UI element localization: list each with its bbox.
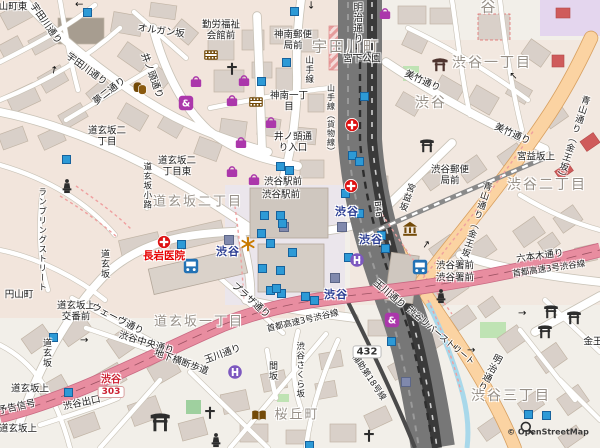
station-entrance-marker (278, 219, 287, 228)
street-label: 道玄坂上 (0, 425, 37, 436)
station-entrance-marker (282, 58, 291, 67)
attribution[interactable]: © OpenStreetMap (507, 429, 589, 438)
oneway-arrow-icon: → (50, 65, 61, 75)
street-label: 勤労福祉 会館前 (202, 20, 240, 41)
shrine-icon (432, 56, 448, 76)
street-label: 山手線（貨物線） (326, 84, 335, 156)
station-name-label: 渋谷 (359, 234, 383, 246)
street-label: 渋谷署前 (436, 262, 474, 273)
street-label: 渋谷さくら坂 (294, 342, 304, 399)
torii-icon (543, 303, 559, 323)
station-entrance-marker (387, 337, 396, 346)
area-label: 谷 (480, 0, 497, 15)
bag-icon (236, 72, 252, 92)
station-entrance-marker (542, 411, 551, 420)
area-label: 渋谷三丁目 (471, 389, 551, 405)
station-entrance-marker (360, 92, 369, 101)
street-label: 渋谷駅前 (264, 178, 302, 189)
station-entrance-marker (64, 388, 73, 397)
street-label: ランブリングストリート (36, 188, 46, 293)
street-label: 宮下公園 (343, 55, 381, 66)
station-entrance-marker (276, 266, 285, 275)
street-label: 道玄坂 (41, 338, 51, 368)
area-label: 渋谷 (415, 96, 447, 112)
station-entrance-marker (301, 292, 310, 301)
subway-entrance-marker (337, 222, 347, 232)
cinema-icon (248, 94, 264, 114)
theater-icon (132, 80, 148, 100)
area-label: 渋谷一丁目 (452, 56, 532, 72)
bag-icon (377, 5, 393, 25)
highway-name-label: 渋谷 (101, 374, 121, 385)
cinema-icon (203, 47, 219, 67)
station-entrance-marker (177, 240, 186, 249)
bag-icon (246, 171, 262, 191)
torii-icon (149, 410, 171, 436)
station-entrance-marker (524, 410, 533, 419)
book-icon (251, 408, 267, 428)
station-entrance-marker (310, 296, 319, 305)
hcircle-icon (227, 364, 243, 384)
station-entrance-marker (83, 8, 92, 17)
area-label: 渋谷二丁目 (507, 178, 587, 194)
route-badge: 432 (353, 345, 382, 358)
station-name-label: 渋谷 (324, 289, 348, 301)
torii-icon (537, 323, 553, 343)
station-entrance-marker (260, 211, 269, 220)
statue-icon (59, 178, 75, 198)
street-label: 金王 (583, 338, 600, 349)
hospital-icon (344, 117, 360, 137)
station-entrance-marker (355, 157, 364, 166)
street-label: 渋谷郵便 局前 (431, 165, 469, 186)
route-badge: 303 (98, 386, 125, 398)
torii-icon (566, 309, 582, 329)
church-icon (361, 429, 377, 448)
street-label: 間坂 (267, 361, 277, 381)
torii-icon (419, 137, 435, 157)
attraction-icon (240, 236, 256, 256)
oneway-arrow-icon: → (75, 0, 83, 8)
station-entrance-marker (285, 166, 294, 175)
hospital-icon (343, 178, 359, 198)
street-label: 道玄坂二 丁目東 (158, 156, 196, 177)
statue-icon (208, 432, 224, 448)
street-label: 明治通り (351, 2, 362, 44)
bus-icon (183, 258, 199, 278)
street-label: 神南郵便 局前 (274, 30, 312, 51)
area-label: 桜丘町 (274, 409, 319, 424)
museum-icon (402, 221, 418, 241)
hcircle-icon (349, 252, 365, 272)
oneway-arrow-icon: → (518, 309, 526, 319)
street-label: 渋谷駅前 (262, 191, 300, 202)
station-entrance-marker (288, 248, 297, 257)
station-entrance-marker (62, 155, 71, 164)
street-label: 山町東 (0, 3, 27, 14)
area-label: 道玄坂一丁目 (154, 316, 244, 331)
oneway-arrow-icon: → (80, 336, 88, 346)
bag-icon (233, 134, 249, 154)
subway-entrance-marker (330, 273, 340, 283)
street-label: 渋谷署前 (436, 274, 474, 285)
clinic-label: 長岩医院 (143, 251, 185, 263)
street-label: 道玄坂小路 (141, 162, 151, 210)
station-entrance-marker (290, 7, 299, 16)
station-entrance-marker (266, 239, 275, 248)
street-label: 山手線 (303, 56, 313, 85)
station-entrance-marker (257, 77, 266, 86)
bus-icon (412, 259, 428, 279)
street-label: 神南一丁 目 (270, 91, 308, 112)
station-entrance-marker (257, 229, 266, 238)
oneway-arrow-icon: → (305, 1, 315, 9)
street-label: 道玄坂二 丁目 (88, 126, 126, 147)
amp-icon (178, 95, 194, 115)
station-entrance-marker (276, 162, 285, 171)
bag-icon (224, 92, 240, 112)
area-label: 道玄坂二丁目 (153, 196, 243, 211)
subway-entrance-marker (224, 235, 234, 245)
station-entrance-marker (305, 441, 314, 448)
subway-entrance-marker (401, 377, 411, 387)
map-canvas[interactable]: & 山町東宇田川通り宇田川通りオルガン坂宇田川町井ノ頭通り夢二通り勤労福祉 会館… (0, 0, 600, 448)
station-name-label: 渋谷 (216, 246, 240, 258)
bag-icon (224, 163, 240, 183)
church-icon (202, 406, 218, 426)
bag-icon (188, 73, 204, 93)
statue-icon (433, 288, 449, 308)
street-label: 道玄坂 (99, 249, 109, 279)
amp-icon (384, 312, 400, 332)
street-label: 円山町 (5, 291, 34, 302)
street-label: 宮益坂上 (517, 153, 555, 164)
street-label: 井ノ頭通 り入口 (274, 132, 312, 153)
street-label: 道玄坂上 (11, 385, 49, 396)
station-entrance-marker (272, 284, 281, 293)
street-label: B46 (372, 201, 382, 217)
station-entrance-marker (258, 264, 267, 273)
station-name-label: 渋谷 (335, 206, 359, 218)
